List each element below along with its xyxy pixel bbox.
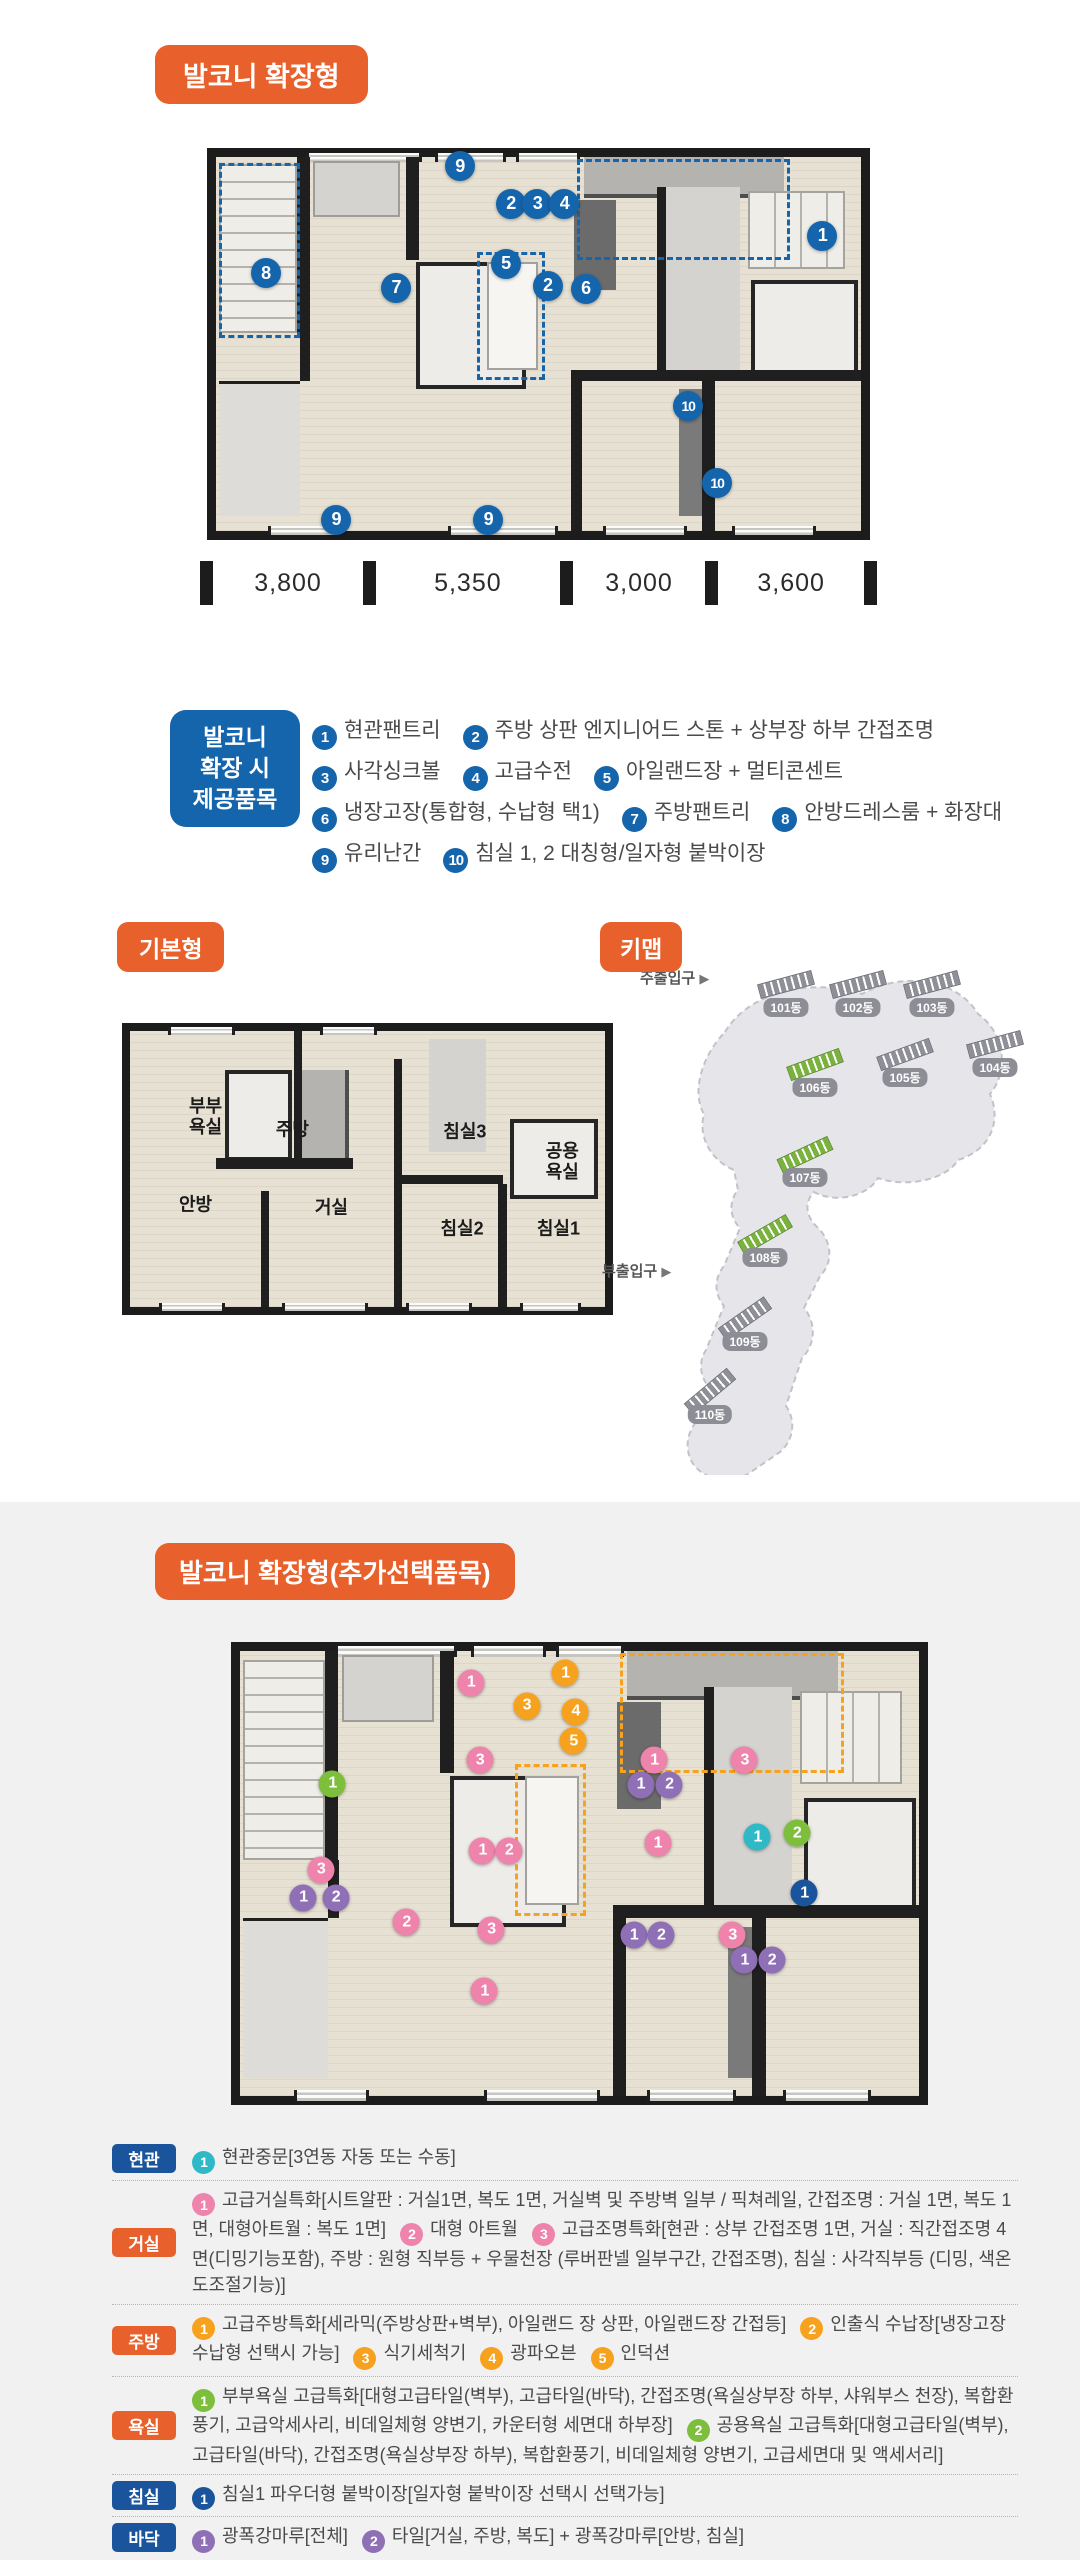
- plan-marker-1: 1: [469, 1837, 496, 1864]
- keymap: 101동102동103동104동105동106동107동108동109동110동…: [600, 925, 1030, 1445]
- plan-marker-1: 1: [290, 1884, 317, 1911]
- plan-marker-3: 3: [522, 189, 552, 219]
- category-badge: 바닥: [112, 2523, 176, 2552]
- legend-item: 4광파오븐: [480, 2343, 576, 2363]
- dimension-tick: [363, 561, 376, 605]
- legend-item: 1현관중문[3연동 자동 또는 수동]: [192, 2147, 456, 2167]
- dimension-row: 3,8005,3503,0003,600: [200, 558, 877, 608]
- plan-marker-2: 2: [322, 1884, 349, 1911]
- item-number: 1: [312, 725, 337, 750]
- plan-marker-1: 1: [457, 1669, 484, 1696]
- building-label: 108동: [742, 1248, 787, 1267]
- legend-items: 1현관중문[3연동 자동 또는 수동]: [192, 2144, 1018, 2174]
- room-label: 거실: [315, 1197, 348, 1218]
- plan-marker-3: 3: [307, 1856, 334, 1883]
- provision-badge-line: 확장 시: [176, 753, 294, 784]
- legend-row: 현관1현관중문[3연동 자동 또는 수동]: [112, 2138, 1018, 2180]
- item-number: 1: [192, 2151, 215, 2174]
- plan-marker-2: 2: [647, 1922, 674, 1949]
- item-number: 2: [800, 2317, 823, 2340]
- bed: [342, 1655, 434, 1722]
- wall-segment: [216, 1158, 354, 1169]
- plan-marker-1: 1: [791, 1880, 818, 1907]
- plan-marker-1: 1: [471, 1978, 498, 2005]
- legend-row: 욕실1부부욕실 고급특화[대형고급타일(벽부), 고급타일(바닥), 간접조명(…: [112, 2376, 1018, 2474]
- item-number: 4: [480, 2347, 503, 2370]
- provision-badge-line: 발코니: [176, 722, 294, 753]
- wall-segment: [440, 1651, 454, 1773]
- provision-item-list: 1현관팬트리2주방 상판 엔지니어드 스톤 + 상부장 하부 간접조명3사각싱크…: [312, 714, 1062, 878]
- floor-plan-options: 1134531312122311123112112312: [231, 1642, 928, 2105]
- plan-marker-3: 3: [478, 1916, 505, 1943]
- common-bathroom: [751, 280, 857, 374]
- item-text: 아일랜드장 + 멀티콘센트: [626, 760, 843, 783]
- item-number: 2: [687, 2419, 710, 2442]
- item-number: 10: [443, 848, 468, 873]
- item-number: 1: [192, 2389, 215, 2412]
- window: [603, 526, 687, 536]
- provision-item: 9유리난간: [312, 847, 421, 864]
- building-icon: [786, 1048, 844, 1081]
- provision-badge: 발코니확장 시제공품목: [170, 710, 300, 827]
- plan-marker-1: 1: [807, 221, 837, 251]
- provision-line: 6냉장고장(통합형, 수납형 택1)7주방팬트리8안방드레스룸 + 화장대: [312, 796, 1062, 832]
- provision-item: 8안방드레스룸 + 화장대: [772, 806, 1002, 823]
- legend-item: 2타일[거실, 주방, 복도] + 광폭강마루[안방, 침실]: [362, 2526, 744, 2546]
- item-text: 타일[거실, 주방, 복도] + 광폭강마루[안방, 침실]: [392, 2526, 744, 2546]
- provision-line: 3사각싱크볼4고급수전5아일랜드장 + 멀티콘센트: [312, 755, 1062, 791]
- window: [732, 526, 816, 536]
- wall-segment: [702, 381, 715, 531]
- plan-marker-9: 9: [321, 505, 351, 535]
- room-label: 안방: [179, 1194, 212, 1215]
- item-text: 현관팬트리: [344, 719, 441, 742]
- brochure-page: 발코니 확장형 9234152678101099 3,8005,3503,000…: [0, 0, 1080, 2560]
- wall-segment: [571, 370, 861, 381]
- item-text: 고급주방특화[세라믹(주방상판+벽부), 아일랜드 장 상판, 아일랜드장 간접…: [222, 2314, 786, 2334]
- category-badge: 욕실: [112, 2411, 176, 2440]
- legend-item: 5인덕션: [591, 2343, 671, 2363]
- plan-marker-1: 1: [620, 1922, 647, 1949]
- plan-marker-2: 2: [656, 1771, 683, 1798]
- wall-segment: [498, 1184, 507, 1307]
- option-outline: [515, 1764, 586, 1915]
- wall-segment: [394, 1184, 403, 1307]
- option-outline: [219, 163, 300, 339]
- item-text: 냉장고장(통합형, 수납형 택1): [344, 801, 600, 824]
- dimension-value: 3,800: [213, 569, 363, 598]
- plan-marker-2: 2: [533, 271, 563, 301]
- window: [448, 526, 558, 536]
- legend-items: 1부부욕실 고급특화[대형고급타일(벽부), 고급타일(바닥), 간접조명(욕실…: [192, 2383, 1018, 2468]
- legend-items: 1고급거실특화[시트알판 : 거실1면, 복도 1면, 거실벽 및 주방벽 일부…: [192, 2187, 1018, 2298]
- building-label: 105동: [882, 1068, 927, 1087]
- wall-segment: [613, 1905, 919, 1918]
- room-label: 침실2: [440, 1218, 483, 1239]
- section-title-options: 발코니 확장형(추가선택품목): [155, 1543, 515, 1600]
- item-text: 현관중문[3연동 자동 또는 수동]: [222, 2147, 456, 2167]
- legend-item: 1침실1 파우더형 붙박이장[일자형 붙박이장 선택시 선택가능]: [192, 2484, 664, 2504]
- item-text: 침실1 파우더형 붙박이장[일자형 붙박이장 선택시 선택가능]: [222, 2484, 664, 2504]
- window: [556, 1646, 624, 1658]
- window: [320, 1027, 377, 1035]
- provision-item: 1현관팬트리: [312, 724, 441, 741]
- legend-items: 1광폭강마루[전체]2타일[거실, 주방, 복도] + 광폭강마루[안방, 침실…: [192, 2523, 1018, 2553]
- legend-row: 거실1고급거실특화[시트알판 : 거실1면, 복도 1면, 거실벽 및 주방벽 …: [112, 2180, 1018, 2304]
- dimension-value: 3,000: [573, 569, 706, 598]
- window: [783, 2090, 871, 2102]
- legend-item: 2대형 아트월: [400, 2219, 518, 2239]
- building-label: 104동: [972, 1058, 1017, 1077]
- dimension-tick: [200, 561, 213, 605]
- kitchen-counter: [301, 1070, 349, 1164]
- plan-marker-1: 1: [627, 1771, 654, 1798]
- wall-segment: [325, 1651, 339, 1860]
- plan-marker-5: 5: [560, 1728, 587, 1755]
- plan-marker-3: 3: [466, 1747, 493, 1774]
- plan-marker-10: 10: [673, 391, 703, 421]
- plan-marker-1: 1: [552, 1660, 579, 1687]
- provision-item: 3사각싱크볼: [312, 765, 441, 782]
- item-text: 인덕션: [621, 2343, 671, 2363]
- option-outline: [577, 159, 790, 260]
- plan-marker-2: 2: [783, 1820, 810, 1847]
- building-label: 107동: [782, 1168, 827, 1187]
- item-text: 침실 1, 2 대칭형/일자형 붙박이장: [475, 842, 765, 865]
- item-number: 4: [463, 766, 488, 791]
- item-number: 1: [192, 2317, 215, 2340]
- bed: [313, 161, 400, 217]
- item-number: 1: [192, 2193, 215, 2216]
- arrow-icon: ▶: [699, 971, 709, 986]
- plan-marker-3: 3: [719, 1922, 746, 1949]
- category-badge: 거실: [112, 2228, 176, 2257]
- dimension-value: 3,600: [718, 569, 864, 598]
- building-label: 110동: [688, 1405, 732, 1424]
- window: [406, 1303, 473, 1311]
- legend-items: 1침실1 파우더형 붙박이장[일자형 붙박이장 선택시 선택가능]: [192, 2481, 1018, 2511]
- window: [516, 153, 581, 163]
- item-text: 광폭강마루[전체]: [222, 2526, 348, 2546]
- plan-marker-10: 10: [702, 468, 732, 498]
- window: [484, 2090, 599, 2102]
- plan-marker-6: 6: [571, 274, 601, 304]
- room-label: 공용 욕실: [546, 1141, 579, 1183]
- common-bathroom: [804, 1798, 916, 1909]
- plan-marker-5: 5: [491, 249, 521, 279]
- item-number: 7: [622, 807, 647, 832]
- building-icon: [876, 1038, 934, 1071]
- item-number: 8: [772, 807, 797, 832]
- building-label: 101동: [763, 998, 808, 1017]
- provision-item: 4고급수전: [463, 765, 572, 782]
- item-number: 5: [591, 2347, 614, 2370]
- dimension-tick: [560, 561, 573, 605]
- floor-plan-extended: 9234152678101099: [207, 148, 870, 540]
- dimension-tick: [864, 561, 877, 605]
- arrow-icon: ▶: [661, 1264, 671, 1279]
- legend-items: 1고급주방특화[세라믹(주방상판+벽부), 아일랜드 장 상판, 아일랜드장 간…: [192, 2311, 1018, 2370]
- master-bathroom: [225, 1070, 292, 1161]
- legend-row: 주방1고급주방특화[세라믹(주방상판+벽부), 아일랜드 장 상판, 아일랜드장…: [112, 2304, 1018, 2376]
- item-text: 식기세척기: [383, 2343, 466, 2363]
- item-number: 1: [192, 2487, 215, 2510]
- window: [282, 1303, 368, 1311]
- item-number: 6: [312, 807, 337, 832]
- floor-plan-basic: 부부 욕실주방안방거실침실3공용 욕실침실2침실1: [122, 1023, 613, 1315]
- master-closet: [243, 1660, 324, 1860]
- plan-marker-1: 1: [731, 1947, 758, 1974]
- provision-line: 1현관팬트리2주방 상판 엔지니어드 스톤 + 상부장 하부 간접조명: [312, 714, 1062, 750]
- plan-marker-4: 4: [562, 1698, 589, 1725]
- plan-marker-4: 4: [549, 189, 579, 219]
- provision-line: 9유리난간10침실 1, 2 대칭형/일자형 붙박이장: [312, 837, 1062, 873]
- provision-item: 10침실 1, 2 대칭형/일자형 붙박이장: [443, 847, 765, 864]
- plan-marker-1: 1: [641, 1747, 668, 1774]
- room-label: 침실3: [443, 1122, 486, 1143]
- plan-marker-3: 3: [513, 1692, 540, 1719]
- room-label: 부부 욕실: [189, 1096, 222, 1138]
- keymap-buildings: 101동102동103동104동105동106동107동108동109동110동: [600, 925, 1030, 1445]
- item-number: 2: [463, 725, 488, 750]
- building-label: 103동: [909, 998, 954, 1017]
- window: [159, 1303, 226, 1311]
- item-number: 2: [400, 2223, 423, 2246]
- building-icon: [966, 1030, 1024, 1059]
- item-number: 2: [362, 2530, 385, 2553]
- options-legend: 현관1현관중문[3연동 자동 또는 수동]거실1고급거실특화[시트알판 : 거실…: [112, 2138, 1018, 2559]
- item-text: 대형 아트월: [430, 2219, 518, 2239]
- item-text: 주방 상판 엔지니어드 스톤 + 상부장 하부 간접조명: [495, 719, 935, 742]
- building-label: 106동: [792, 1078, 837, 1097]
- plan-marker-3: 3: [731, 1747, 758, 1774]
- plan-marker-8: 8: [251, 258, 281, 288]
- wall-segment: [394, 1059, 403, 1180]
- plan-marker-1: 1: [644, 1830, 671, 1857]
- wall-segment: [261, 1191, 270, 1307]
- item-number: 1: [192, 2530, 215, 2553]
- plan-marker-9: 9: [473, 505, 503, 535]
- window: [647, 2090, 735, 2102]
- plan-marker-1: 1: [319, 1770, 346, 1797]
- wall-segment: [394, 1175, 503, 1185]
- dimension-tick: [705, 561, 718, 605]
- room-label: 침실1: [537, 1218, 580, 1239]
- legend-item: 1고급주방특화[세라믹(주방상판+벽부), 아일랜드 장 상판, 아일랜드장 간…: [192, 2314, 786, 2334]
- item-number: 3: [532, 2223, 555, 2246]
- plan-marker-2: 2: [495, 1837, 522, 1864]
- section-title-extended: 발코니 확장형: [155, 45, 368, 104]
- building-label: 102동: [835, 998, 880, 1017]
- plan-marker-7: 7: [381, 273, 411, 303]
- plan-marker-2: 2: [758, 1947, 785, 1974]
- section-title-basic: 기본형: [117, 922, 224, 972]
- wall-segment: [294, 1031, 303, 1163]
- item-text: 안방드레스룸 + 화장대: [804, 801, 1002, 824]
- building-icon: [757, 970, 815, 999]
- window: [471, 1646, 546, 1658]
- plan-marker-2: 2: [393, 1909, 420, 1936]
- window: [294, 2090, 369, 2102]
- utility-balcony: [243, 1918, 328, 2078]
- plan-marker-1: 1: [744, 1824, 771, 1851]
- section-title-keymap: 키맵: [600, 922, 682, 972]
- wall-segment: [571, 381, 583, 531]
- window: [168, 1027, 235, 1035]
- category-badge: 현관: [112, 2144, 176, 2173]
- plan-marker-9: 9: [445, 151, 475, 181]
- item-number: 5: [594, 766, 619, 791]
- item-text: 사각싱크볼: [344, 760, 441, 783]
- item-text: 광파오븐: [510, 2343, 576, 2363]
- provision-badge-line: 제공품목: [176, 784, 294, 815]
- item-text: 유리난간: [344, 842, 421, 865]
- legend-row: 바닥1광폭강마루[전체]2타일[거실, 주방, 복도] + 광폭강마루[안방, …: [112, 2516, 1018, 2559]
- dimension-value: 5,350: [376, 569, 560, 598]
- category-badge: 침실: [112, 2481, 176, 2510]
- building-label: 109동: [722, 1332, 767, 1351]
- utility-balcony: [219, 381, 300, 516]
- item-number: 3: [312, 766, 337, 791]
- sub-entrance-label: 부출입구 ▶: [602, 1260, 671, 1281]
- item-text: 주방팬트리: [654, 801, 751, 824]
- item-text: 고급수전: [495, 760, 572, 783]
- provision-item: 5아일랜드장 + 멀티콘센트: [594, 765, 843, 782]
- item-number: 3: [353, 2347, 376, 2370]
- wall-segment: [300, 333, 310, 382]
- legend-item: 1광폭강마루[전체]: [192, 2526, 348, 2546]
- provision-item: 6냉장고장(통합형, 수납형 택1): [312, 806, 600, 823]
- window: [520, 1303, 582, 1311]
- wall-segment: [752, 1918, 766, 2096]
- category-badge: 주방: [112, 2326, 176, 2355]
- building-icon: [829, 970, 887, 999]
- item-number: 9: [312, 848, 337, 873]
- room-label: 주방: [276, 1120, 309, 1141]
- legend-item: 3식기세척기: [353, 2343, 466, 2363]
- wall-segment: [406, 157, 419, 260]
- provision-item: 7주방팬트리: [622, 806, 751, 823]
- building-icon: [903, 970, 961, 999]
- legend-row: 침실1침실1 파우더형 붙박이장[일자형 붙박이장 선택시 선택가능]: [112, 2474, 1018, 2517]
- provision-item: 2주방 상판 엔지니어드 스톤 + 상부장 하부 간접조명: [463, 724, 935, 741]
